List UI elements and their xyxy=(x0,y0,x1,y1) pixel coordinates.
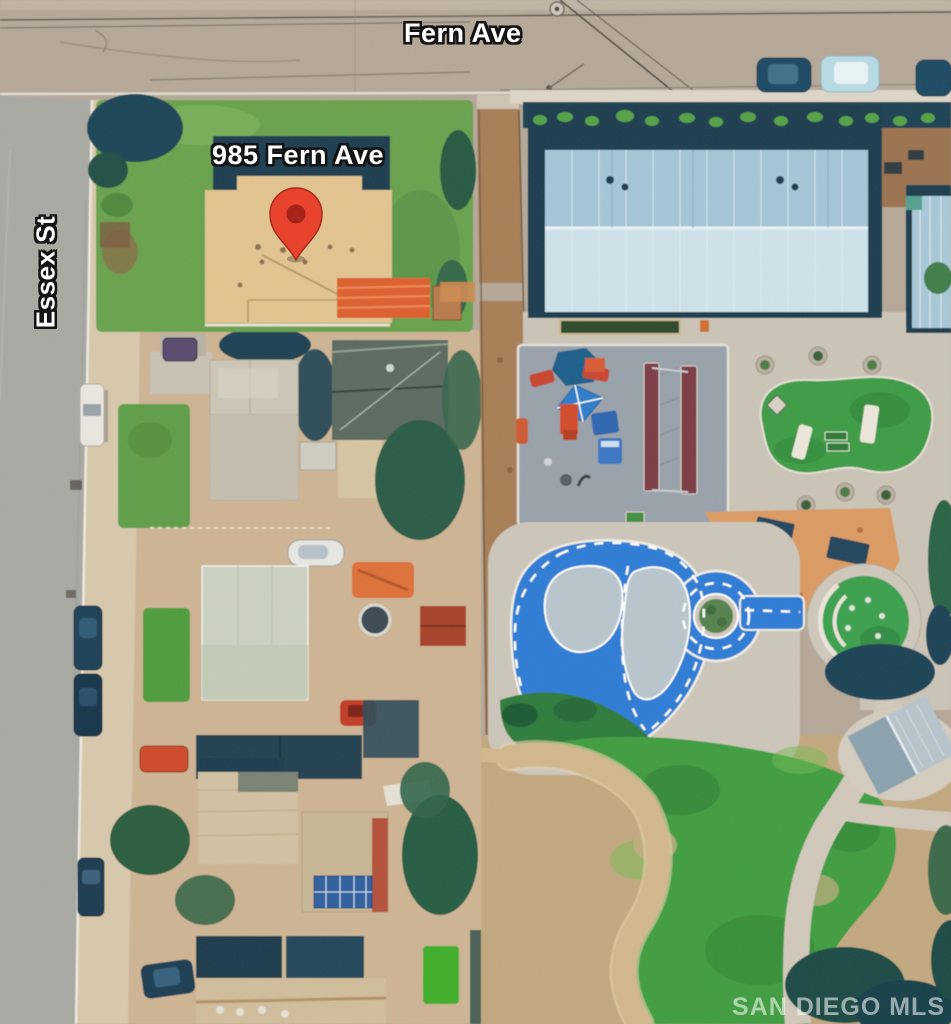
mls-watermark: SAN DIEGO MLS xyxy=(732,993,945,1022)
location-pin-icon[interactable] xyxy=(268,186,324,264)
satellite-imagery xyxy=(0,0,951,1024)
street-label-fern-ave: Fern Ave xyxy=(404,18,522,49)
pin-body xyxy=(270,188,322,260)
photo-grain-overlay xyxy=(0,0,951,1024)
pin-center-dot xyxy=(287,205,306,224)
address-label: 985 Fern Ave xyxy=(212,140,384,171)
street-label-essex-st: Essex St xyxy=(31,216,62,328)
satellite-map[interactable]: Fern Ave Essex St 985 Fern Ave SAN DIEGO… xyxy=(0,0,951,1024)
